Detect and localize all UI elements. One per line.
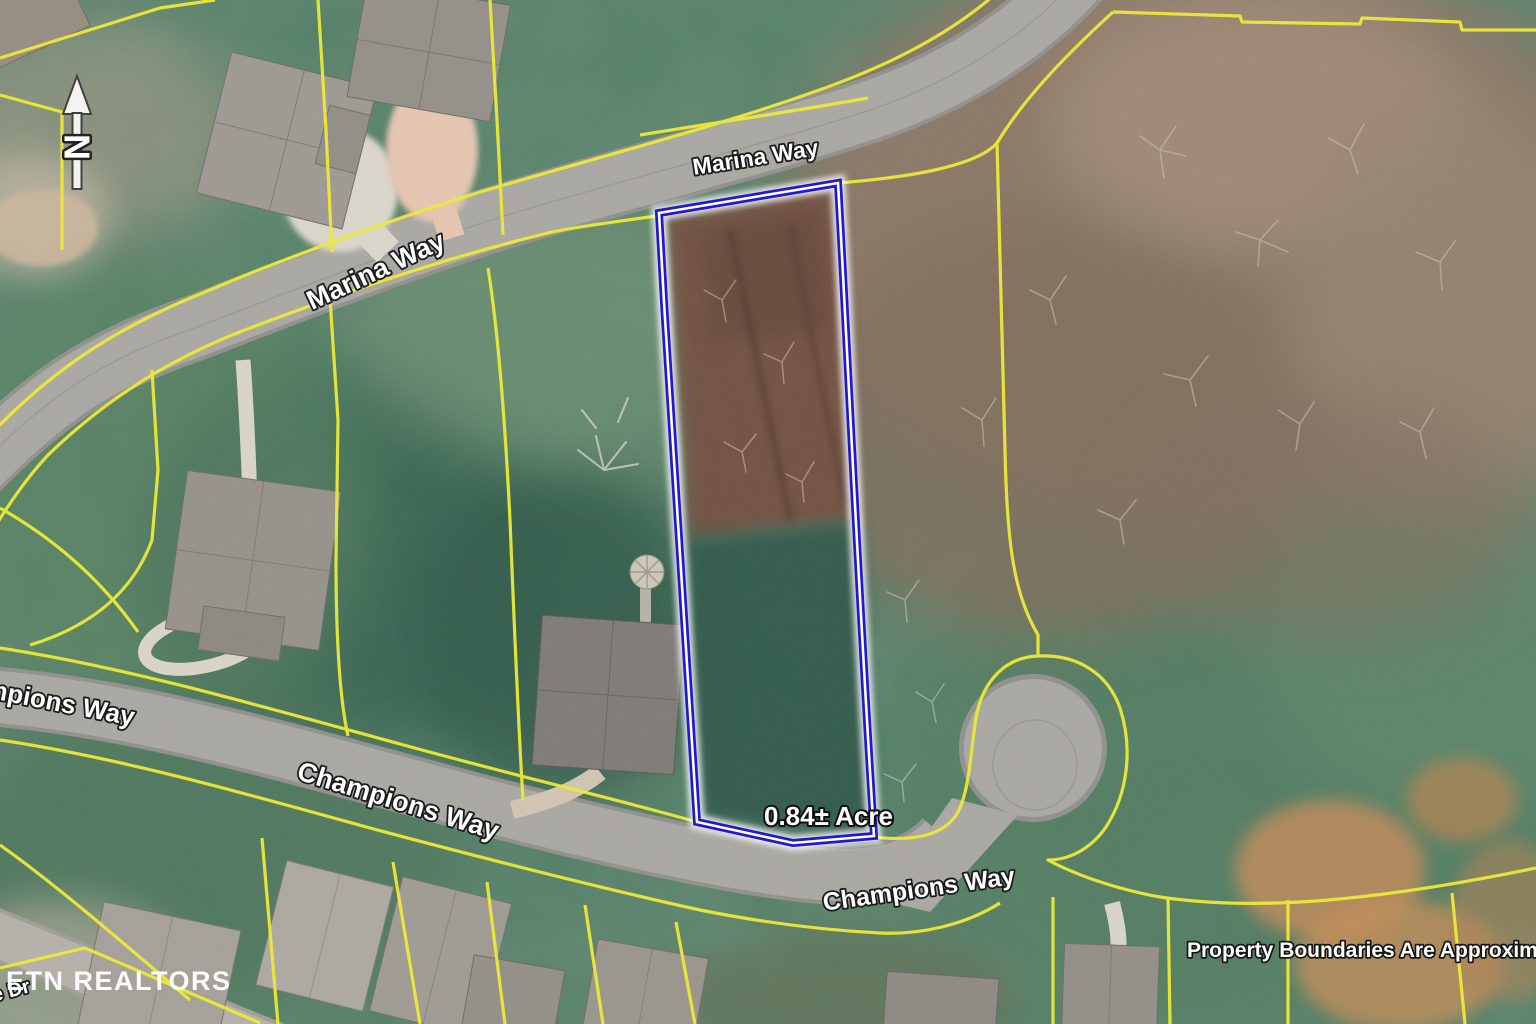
lot-acreage-label: 0.84± Acre — [764, 801, 893, 831]
aerial-map: Marina Way Marina Way Champions Way Cham… — [0, 0, 1536, 1024]
disclaimer-text: Property Boundaries Are Approximate — [1187, 939, 1536, 962]
realtor-watermark: ETN REALTORS — [6, 966, 232, 996]
north-label: N — [57, 134, 98, 160]
